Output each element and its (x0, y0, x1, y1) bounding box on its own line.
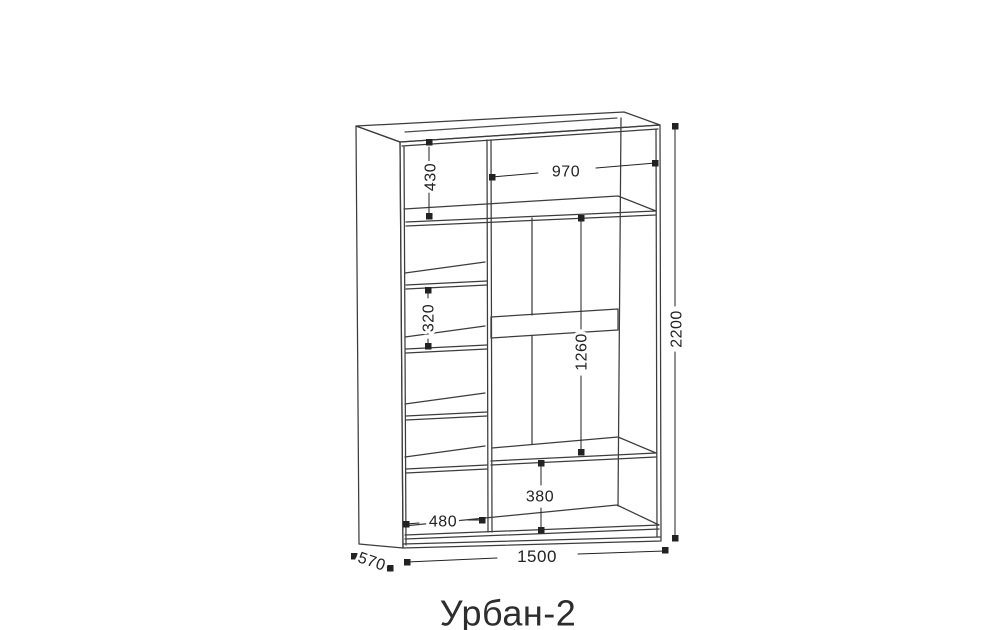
dim-380-label: 380 (526, 489, 554, 506)
marker-380-top (538, 460, 545, 467)
dim-320-label: 320 (421, 304, 438, 332)
drawing-canvas: 430 970 2200 320 1260 380 480 1500 570 У… (0, 0, 1000, 630)
marker-430-bottom (426, 213, 433, 220)
dim-2200-label: 2200 (669, 310, 686, 348)
marker-2200-bottom (672, 535, 679, 542)
dim-1500-label: 1500 (517, 547, 557, 566)
marker-380-bottom (538, 527, 545, 534)
dim-480-label: 480 (429, 514, 457, 531)
wardrobe-technical-drawing: 430 970 2200 320 1260 380 480 1500 570 У… (0, 0, 1000, 630)
marker-570-bottom (387, 565, 394, 572)
marker-1500-left (404, 559, 411, 566)
dim-1260-label: 1260 (574, 333, 591, 371)
marker-1260-bottom (578, 449, 585, 456)
marker-570-top (351, 553, 358, 560)
dim-430-label: 430 (423, 163, 440, 191)
marker-480-right (479, 517, 486, 524)
marker-320-bottom (425, 343, 432, 350)
marker-320-top (425, 287, 432, 294)
marker-480-left (403, 521, 410, 528)
marker-1260-top (578, 215, 585, 222)
product-title: Урбан-2 (440, 593, 576, 630)
marker-970-right (652, 160, 659, 167)
dim-970-label: 970 (552, 164, 580, 181)
marker-2200-top (672, 123, 679, 130)
marker-430-top (426, 139, 433, 146)
marker-970-left (489, 174, 496, 181)
marker-1500-right (662, 547, 669, 554)
